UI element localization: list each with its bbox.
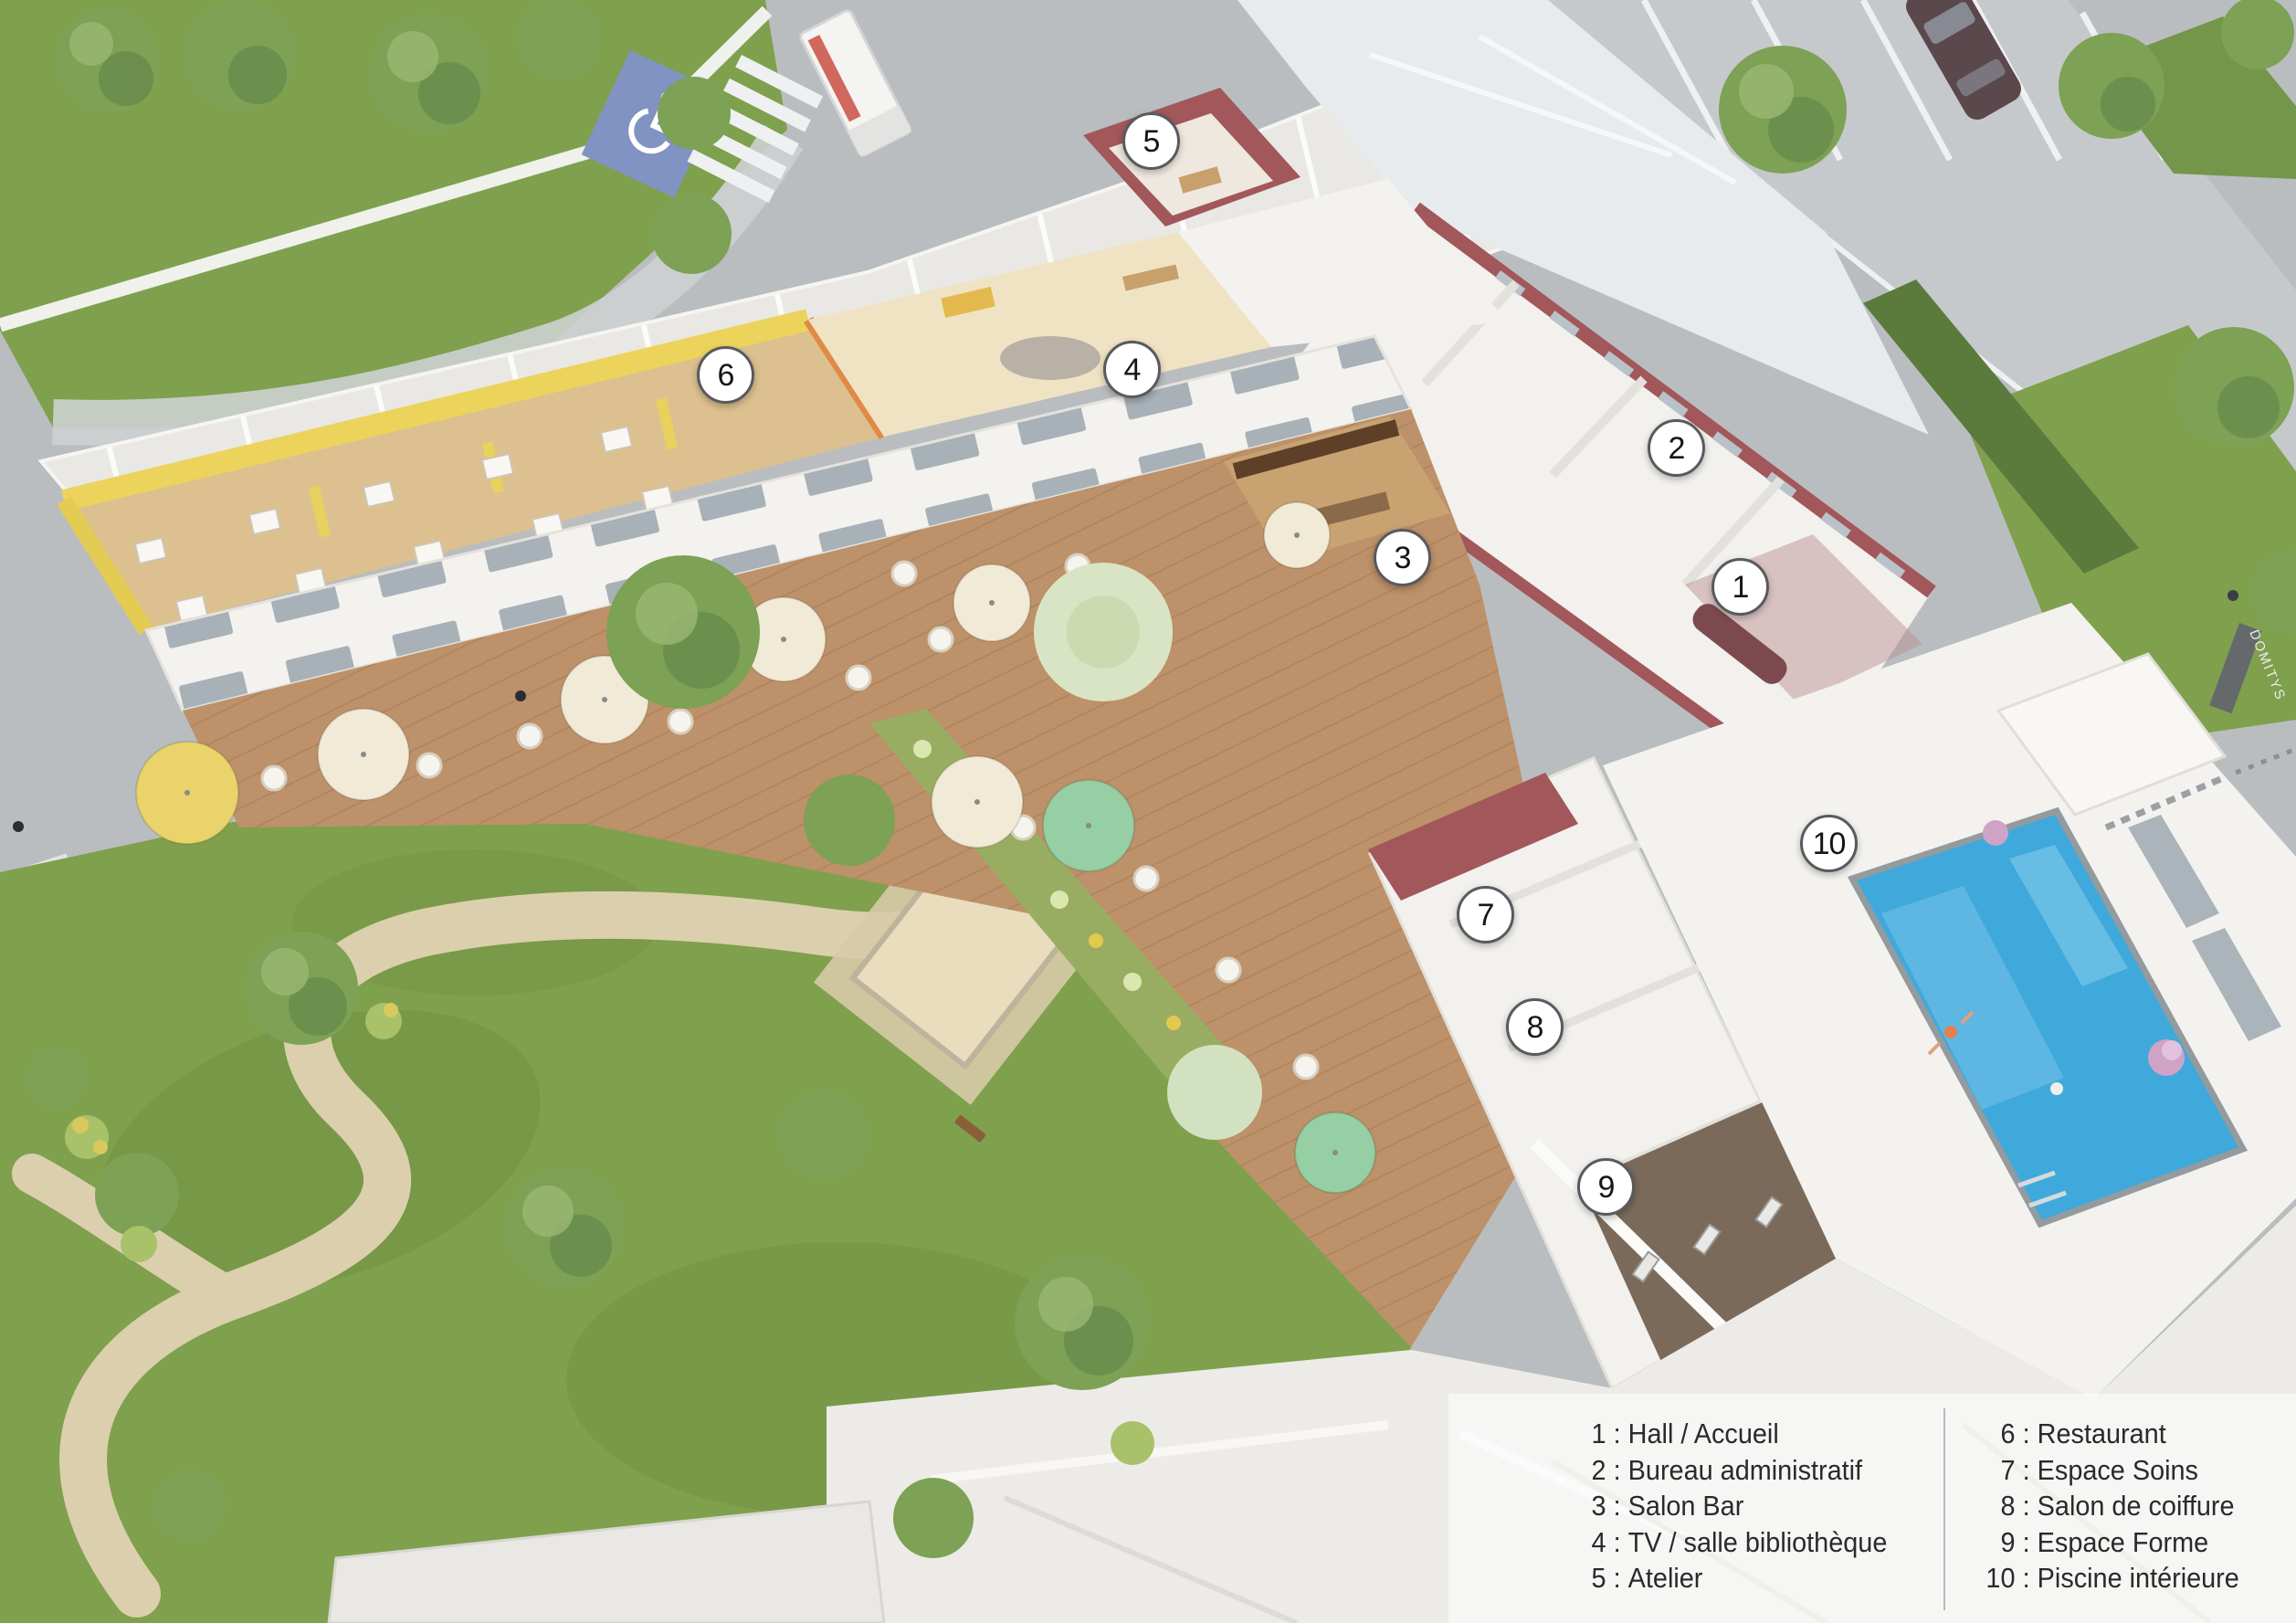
legend-item-number: 8: [1973, 1488, 2016, 1524]
site-plan-rendering: DOMITYS: [0, 0, 2296, 1623]
legend-item-10: 10:Piscine intérieure: [1973, 1560, 2239, 1597]
legend-item-number: 1: [1564, 1416, 1606, 1452]
legend-item-separator: :: [1606, 1488, 1628, 1524]
legend-item-separator: :: [2016, 1488, 2038, 1524]
legend-item-label: TV / salle bibliothèque: [1628, 1524, 1888, 1561]
legend-item-separator: :: [1606, 1452, 1628, 1489]
legend-item-label: Restaurant: [2038, 1416, 2239, 1452]
legend-item-separator: :: [1606, 1524, 1628, 1561]
legend-item-separator: :: [1606, 1416, 1628, 1452]
legend-item-9: 9:Espace Forme: [1973, 1524, 2239, 1561]
legend-item-label: Espace Forme: [2038, 1524, 2239, 1561]
legend-item-3: 3:Salon Bar: [1564, 1488, 1887, 1524]
legend-item-number: 6: [1973, 1416, 2016, 1452]
legend-item-label: Salon Bar: [1628, 1488, 1888, 1524]
scene-artwork: DOMITYS: [0, 0, 2296, 1623]
legend-item-4: 4:TV / salle bibliothèque: [1564, 1524, 1887, 1561]
legend-column-2: 6:Restaurant7:Espace Soins8:Salon de coi…: [1973, 1416, 2259, 1597]
legend-item-1: 1:Hall / Accueil: [1564, 1416, 1887, 1452]
legend-item-separator: :: [2016, 1452, 2038, 1489]
legend-item-6: 6:Restaurant: [1973, 1416, 2239, 1452]
legend-item-8: 8:Salon de coiffure: [1973, 1488, 2239, 1524]
legend-column-1: 1:Hall / Accueil2:Bureau administratif3:…: [1564, 1416, 1912, 1597]
legend-item-number: 3: [1564, 1488, 1606, 1524]
legend-panel: 1:Hall / Accueil2:Bureau administratif3:…: [1448, 1394, 2296, 1623]
legend-item-number: 9: [1973, 1524, 2016, 1561]
legend-item-separator: :: [2016, 1560, 2038, 1597]
legend-item-5: 5:Atelier: [1564, 1560, 1887, 1597]
legend-item-number: 7: [1973, 1452, 2016, 1489]
legend-item-number: 5: [1564, 1560, 1606, 1597]
legend-item-7: 7:Espace Soins: [1973, 1452, 2239, 1489]
legend-item-label: Piscine intérieure: [2038, 1560, 2239, 1597]
legend-item-label: Salon de coiffure: [2038, 1488, 2239, 1524]
legend-item-label: Bureau administratif: [1628, 1452, 1888, 1489]
legend-item-label: Espace Soins: [2038, 1452, 2239, 1489]
legend-item-number: 10: [1973, 1560, 2016, 1597]
legend-item-label: Hall / Accueil: [1628, 1416, 1888, 1452]
legend-item-2: 2:Bureau administratif: [1564, 1452, 1887, 1489]
legend-item-number: 2: [1564, 1452, 1606, 1489]
legend-item-label: Atelier: [1628, 1560, 1888, 1597]
legend-item-separator: :: [2016, 1524, 2038, 1561]
legend-item-number: 4: [1564, 1524, 1606, 1561]
legend-divider: [1943, 1408, 1945, 1610]
legend-item-separator: :: [1606, 1560, 1628, 1597]
legend-item-separator: :: [2016, 1416, 2038, 1452]
